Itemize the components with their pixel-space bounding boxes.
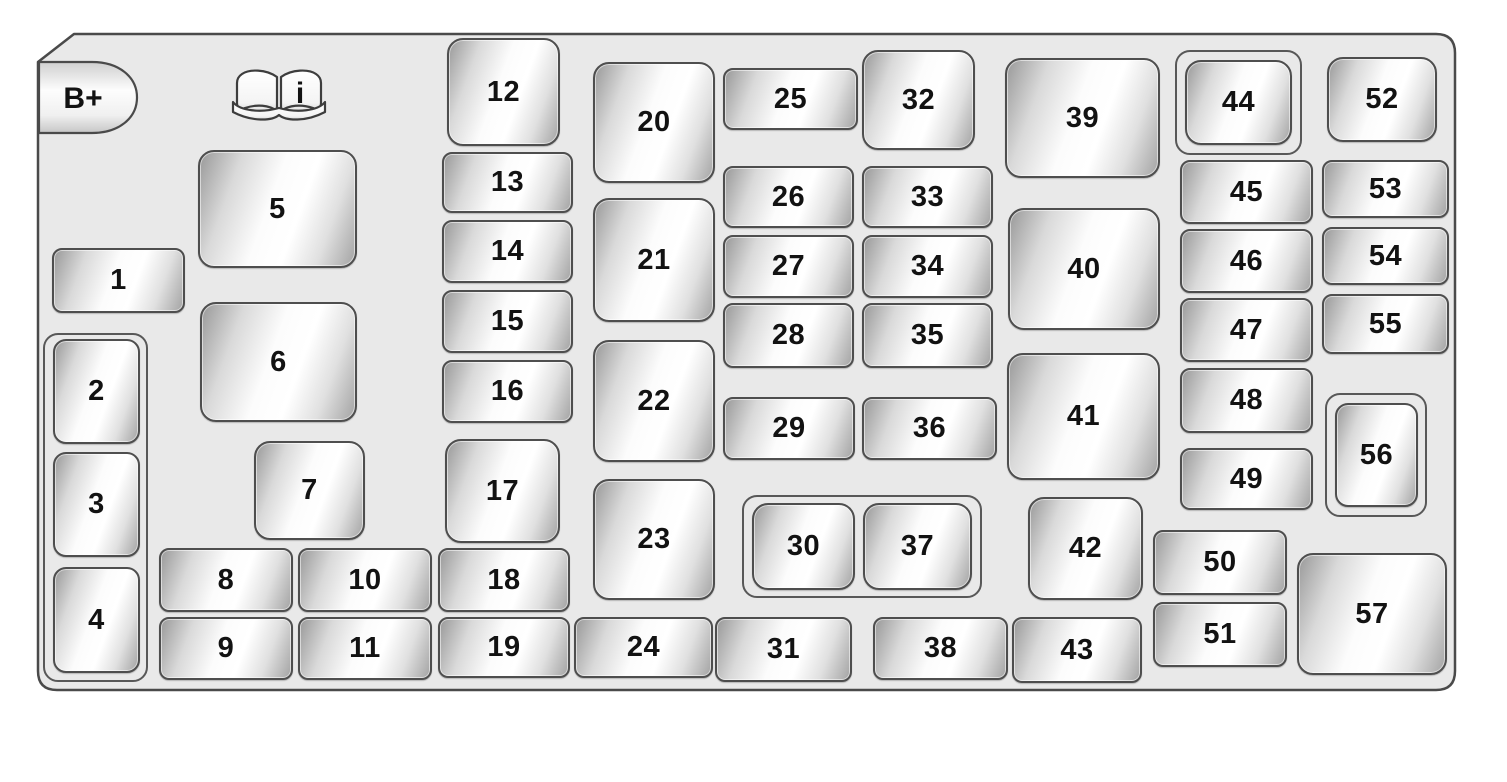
fuse-49: 49 xyxy=(1180,448,1313,510)
fuse-45: 45 xyxy=(1180,160,1313,224)
fuse-4: 4 xyxy=(53,567,140,673)
fuse-18: 18 xyxy=(438,548,570,612)
fuse-39: 39 xyxy=(1005,58,1160,178)
fuse-46: 46 xyxy=(1180,229,1313,293)
fuse-32: 32 xyxy=(862,50,975,150)
fuse-25: 25 xyxy=(723,68,858,130)
fuse-3: 3 xyxy=(53,452,140,557)
fuse-box-diagram: B+ i 12345678910111213141516171819202122… xyxy=(0,0,1507,782)
fuse-48: 48 xyxy=(1180,368,1313,433)
fuse-56: 56 xyxy=(1335,403,1418,507)
fuse-41: 41 xyxy=(1007,353,1160,480)
fuse-31: 31 xyxy=(715,617,852,682)
fuse-16: 16 xyxy=(442,360,573,423)
fuse-37: 37 xyxy=(863,503,972,590)
fuse-7: 7 xyxy=(254,441,365,540)
fuse-43: 43 xyxy=(1012,617,1142,683)
fuse-9: 9 xyxy=(159,617,293,680)
fuse-24: 24 xyxy=(574,617,713,678)
fuse-42: 42 xyxy=(1028,497,1143,600)
fuse-10: 10 xyxy=(298,548,432,612)
fuse-44: 44 xyxy=(1185,60,1292,145)
fuse-35: 35 xyxy=(862,303,993,368)
fuse-57: 57 xyxy=(1297,553,1447,675)
fuse-47: 47 xyxy=(1180,298,1313,362)
fuse-20: 20 xyxy=(593,62,715,183)
fuse-38: 38 xyxy=(873,617,1008,680)
fuse-40: 40 xyxy=(1008,208,1160,330)
fuse-19: 19 xyxy=(438,617,570,678)
fuse-12: 12 xyxy=(447,38,560,146)
fuse-28: 28 xyxy=(723,303,854,368)
fuse-1: 1 xyxy=(52,248,185,313)
fuse-50: 50 xyxy=(1153,530,1287,595)
fuse-27: 27 xyxy=(723,235,854,298)
fuse-13: 13 xyxy=(442,152,573,213)
fuse-36: 36 xyxy=(862,397,997,460)
fuse-2: 2 xyxy=(53,339,140,444)
fuse-30: 30 xyxy=(752,503,855,590)
fuse-54: 54 xyxy=(1322,227,1449,285)
fuse-14: 14 xyxy=(442,220,573,283)
fuse-51: 51 xyxy=(1153,602,1287,667)
fuse-21: 21 xyxy=(593,198,715,322)
fuse-53: 53 xyxy=(1322,160,1449,218)
fuse-55: 55 xyxy=(1322,294,1449,354)
fuse-26: 26 xyxy=(723,166,854,228)
fuse-22: 22 xyxy=(593,340,715,462)
fuse-5: 5 xyxy=(198,150,357,268)
fuse-33: 33 xyxy=(862,166,993,228)
fuse-11: 11 xyxy=(298,617,432,680)
fuse-layer: 1234567891011121314151617181920212223242… xyxy=(0,0,1507,782)
fuse-17: 17 xyxy=(445,439,560,543)
fuse-6: 6 xyxy=(200,302,357,422)
fuse-8: 8 xyxy=(159,548,293,612)
fuse-52: 52 xyxy=(1327,57,1437,142)
fuse-15: 15 xyxy=(442,290,573,353)
fuse-34: 34 xyxy=(862,235,993,298)
fuse-29: 29 xyxy=(723,397,855,460)
fuse-23: 23 xyxy=(593,479,715,600)
